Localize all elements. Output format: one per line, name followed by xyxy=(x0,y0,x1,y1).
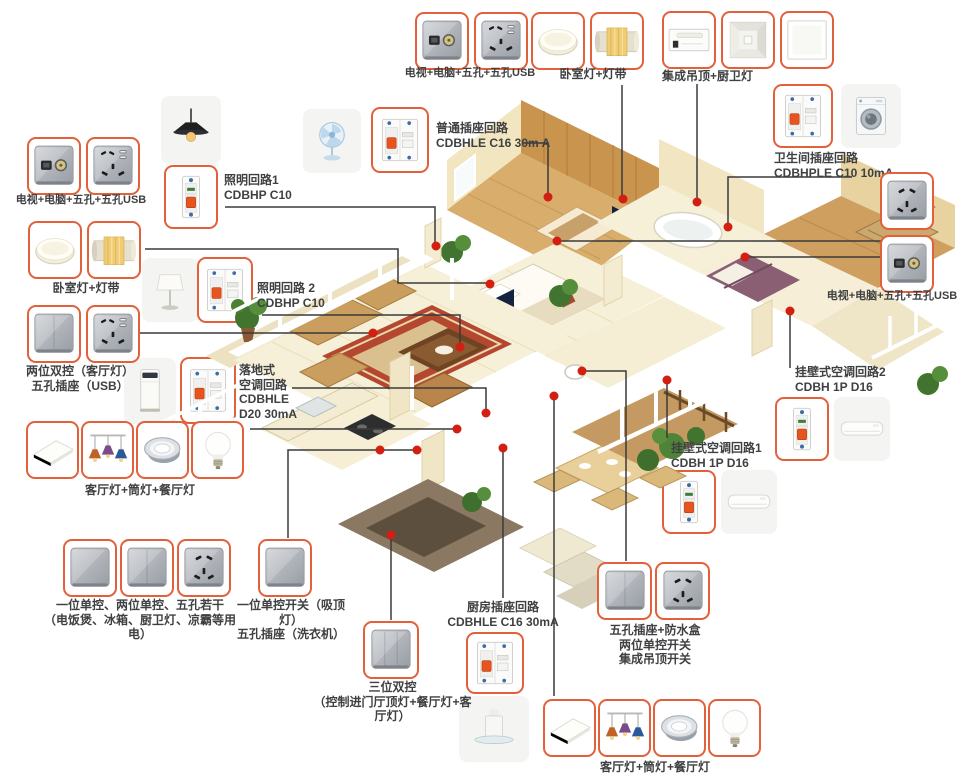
tv-left-label: 电视+电脑+五孔+五孔USB xyxy=(15,194,147,207)
integrated-ceiling-module-image xyxy=(662,11,716,69)
single-switch-line2: 五孔插座（洗衣机） xyxy=(228,627,354,642)
wall-ac2-model: CDBH 1P D16 xyxy=(795,380,925,395)
ordinary-circuit-name: 普通插座回路 xyxy=(436,121,556,136)
lighting2-name: 照明回路 2 xyxy=(257,281,347,296)
lighting2-model: CDBHP C10 xyxy=(257,296,347,311)
flat-panel-light-image xyxy=(543,699,596,757)
two-gang-switch-image xyxy=(27,305,81,363)
callout-bedroom-top-tiles xyxy=(531,12,644,70)
five-hole-usb-socket-image xyxy=(86,137,140,195)
wall-ac1-label: 挂壁式空调回路1 CDBH 1P D16 xyxy=(671,441,801,470)
bedroom-left-label: 卧室灯+灯带 xyxy=(36,281,136,296)
square-kitchen-light-image xyxy=(721,11,775,69)
bathroom-circuit-name: 卫生间插座回路 xyxy=(774,151,914,166)
bulb-image xyxy=(708,699,761,757)
kitchen-socket-label: 厨房插座回路 CDBHLE C16 30mA xyxy=(442,600,564,629)
kitchen-switches-line2: （电饭煲、冰箱、厨卫灯、凉霸等用电） xyxy=(35,613,245,642)
wall-ac1-model: CDBH 1P D16 xyxy=(671,456,801,471)
tv-top-label: 电视+电脑+五孔+五孔USB xyxy=(403,67,537,80)
ordinary-circuit-model: CDBHLE C16 30m A xyxy=(436,136,556,151)
five-hole-usb-socket-image xyxy=(86,305,140,363)
tv-pc-socket-image xyxy=(27,137,81,195)
ordinary-circuit-label: 普通插座回路 CDBHLE C16 30m A xyxy=(436,121,556,150)
lighting1-label: 照明回路1 CDBHP C10 xyxy=(224,173,314,202)
living-bottom-label: 客厅灯+筒灯+餐厅灯 xyxy=(595,760,715,775)
callout-tv-left-tiles xyxy=(27,137,140,195)
ceiling-lamp-image xyxy=(531,12,585,70)
led-strip-image xyxy=(590,12,644,70)
waterproof-line3: 集成吊顶开关 xyxy=(598,652,712,667)
living-left-label: 客厅灯+筒灯+餐厅灯 xyxy=(80,483,200,498)
callout-living-bottom-tiles xyxy=(543,699,761,757)
callout-waterproof-tiles xyxy=(597,562,710,620)
triple-pendant-light-image xyxy=(81,421,134,479)
floor-ac-line2: 空调回路 xyxy=(239,378,314,393)
lighting1-model: CDBHP C10 xyxy=(224,188,314,203)
callout-ceiling-top-tiles xyxy=(662,11,834,69)
tv-right-label: 电视+电脑+五孔+五孔USB xyxy=(816,290,968,303)
kitchen-socket-name: 厨房插座回路 xyxy=(442,600,564,615)
lighting2-label: 照明回路 2 CDBHP C10 xyxy=(257,281,347,310)
led-strip-image xyxy=(87,221,141,279)
one-gang-switch-image xyxy=(63,539,117,597)
five-hole-socket-image xyxy=(655,562,710,620)
waterproof-label: 五孔插座+防水盒 两位单控开关 集成吊顶开关 xyxy=(598,623,712,667)
kitchen-switches-line1: 一位单控、两位单控、五孔若干 xyxy=(35,598,245,613)
callout-kitchen-switch-tiles xyxy=(63,539,231,597)
waterproof-line1: 五孔插座+防水盒 xyxy=(598,623,712,638)
floor-ac-label: 落地式 空调回路 CDBHLE D20 30mA xyxy=(239,363,314,422)
wall-ac2-label: 挂壁式空调回路2 CDBH 1P D16 xyxy=(795,365,925,394)
flat-panel-light-image xyxy=(26,421,79,479)
five-hole-usb-socket-image xyxy=(474,12,528,70)
callout-tv-top-tiles xyxy=(415,12,528,70)
callout-tv-right-tiles xyxy=(880,172,934,293)
kitchen-switches-label: 一位单控、两位单控、五孔若干 （电饭煲、冰箱、厨卫灯、凉霸等用电） xyxy=(35,598,245,642)
lighting1-name: 照明回路1 xyxy=(224,173,314,188)
tv-pc-socket-image xyxy=(880,235,934,293)
bedroom-top-label: 卧室灯+灯带 xyxy=(547,67,639,82)
five-hole-socket-image xyxy=(880,172,934,230)
two-gang-switch-image xyxy=(597,562,652,620)
single-switch-label: 一位单控开关（吸顶灯） 五孔插座（洗衣机） xyxy=(228,598,354,642)
three-gang-label: 三位双控 （控制进门厅顶灯+餐厅灯+客厅灯） xyxy=(310,680,475,724)
callout-twogang-tiles xyxy=(27,305,140,363)
waterproof-line2: 两位单控开关 xyxy=(598,638,712,653)
floor-ac-line4: D20 30mA xyxy=(239,407,314,422)
wall-ac2-name: 挂壁式空调回路2 xyxy=(795,365,925,380)
floor-ac-line1: 落地式 xyxy=(239,363,314,378)
callout-bedroom-left-tiles xyxy=(28,221,141,279)
wall-ac1-name: 挂壁式空调回路1 xyxy=(671,441,801,456)
downlight-image xyxy=(136,421,189,479)
downlight-image xyxy=(653,699,706,757)
single-switch-line1: 一位单控开关（吸顶灯） xyxy=(228,598,354,627)
home-wiring-diagram: 电视+电脑+五孔+五孔USB 卧室灯+灯带 集成吊顶+厨卫灯 普通插座回路 CD… xyxy=(0,0,974,781)
floor-ac-line3: CDBHLE xyxy=(239,392,314,407)
two-gang-switch-image xyxy=(120,539,174,597)
three-gang-line2: （控制进门厅顶灯+餐厅灯+客厅灯） xyxy=(310,695,475,724)
floorplan xyxy=(0,0,955,609)
bulb-image xyxy=(191,421,244,479)
tv-pc-socket-image xyxy=(415,12,469,70)
ceiling-lamp-image xyxy=(28,221,82,279)
five-hole-socket-image xyxy=(177,539,231,597)
twogang-line2: 五孔插座（USB） xyxy=(10,379,150,394)
callout-living-left-tiles xyxy=(26,421,244,479)
triple-pendant-light-image xyxy=(598,699,651,757)
twogang-line1: 两位双控（客厅灯） xyxy=(10,364,150,379)
white-ceiling-panel-image xyxy=(780,11,834,69)
ceiling-top-label: 集成吊顶+厨卫灯 xyxy=(662,69,782,84)
kitchen-socket-model: CDBHLE C16 30mA xyxy=(442,615,564,630)
three-gang-line1: 三位双控 xyxy=(310,680,475,695)
twogang-label: 两位双控（客厅灯） 五孔插座（USB） xyxy=(10,364,150,393)
